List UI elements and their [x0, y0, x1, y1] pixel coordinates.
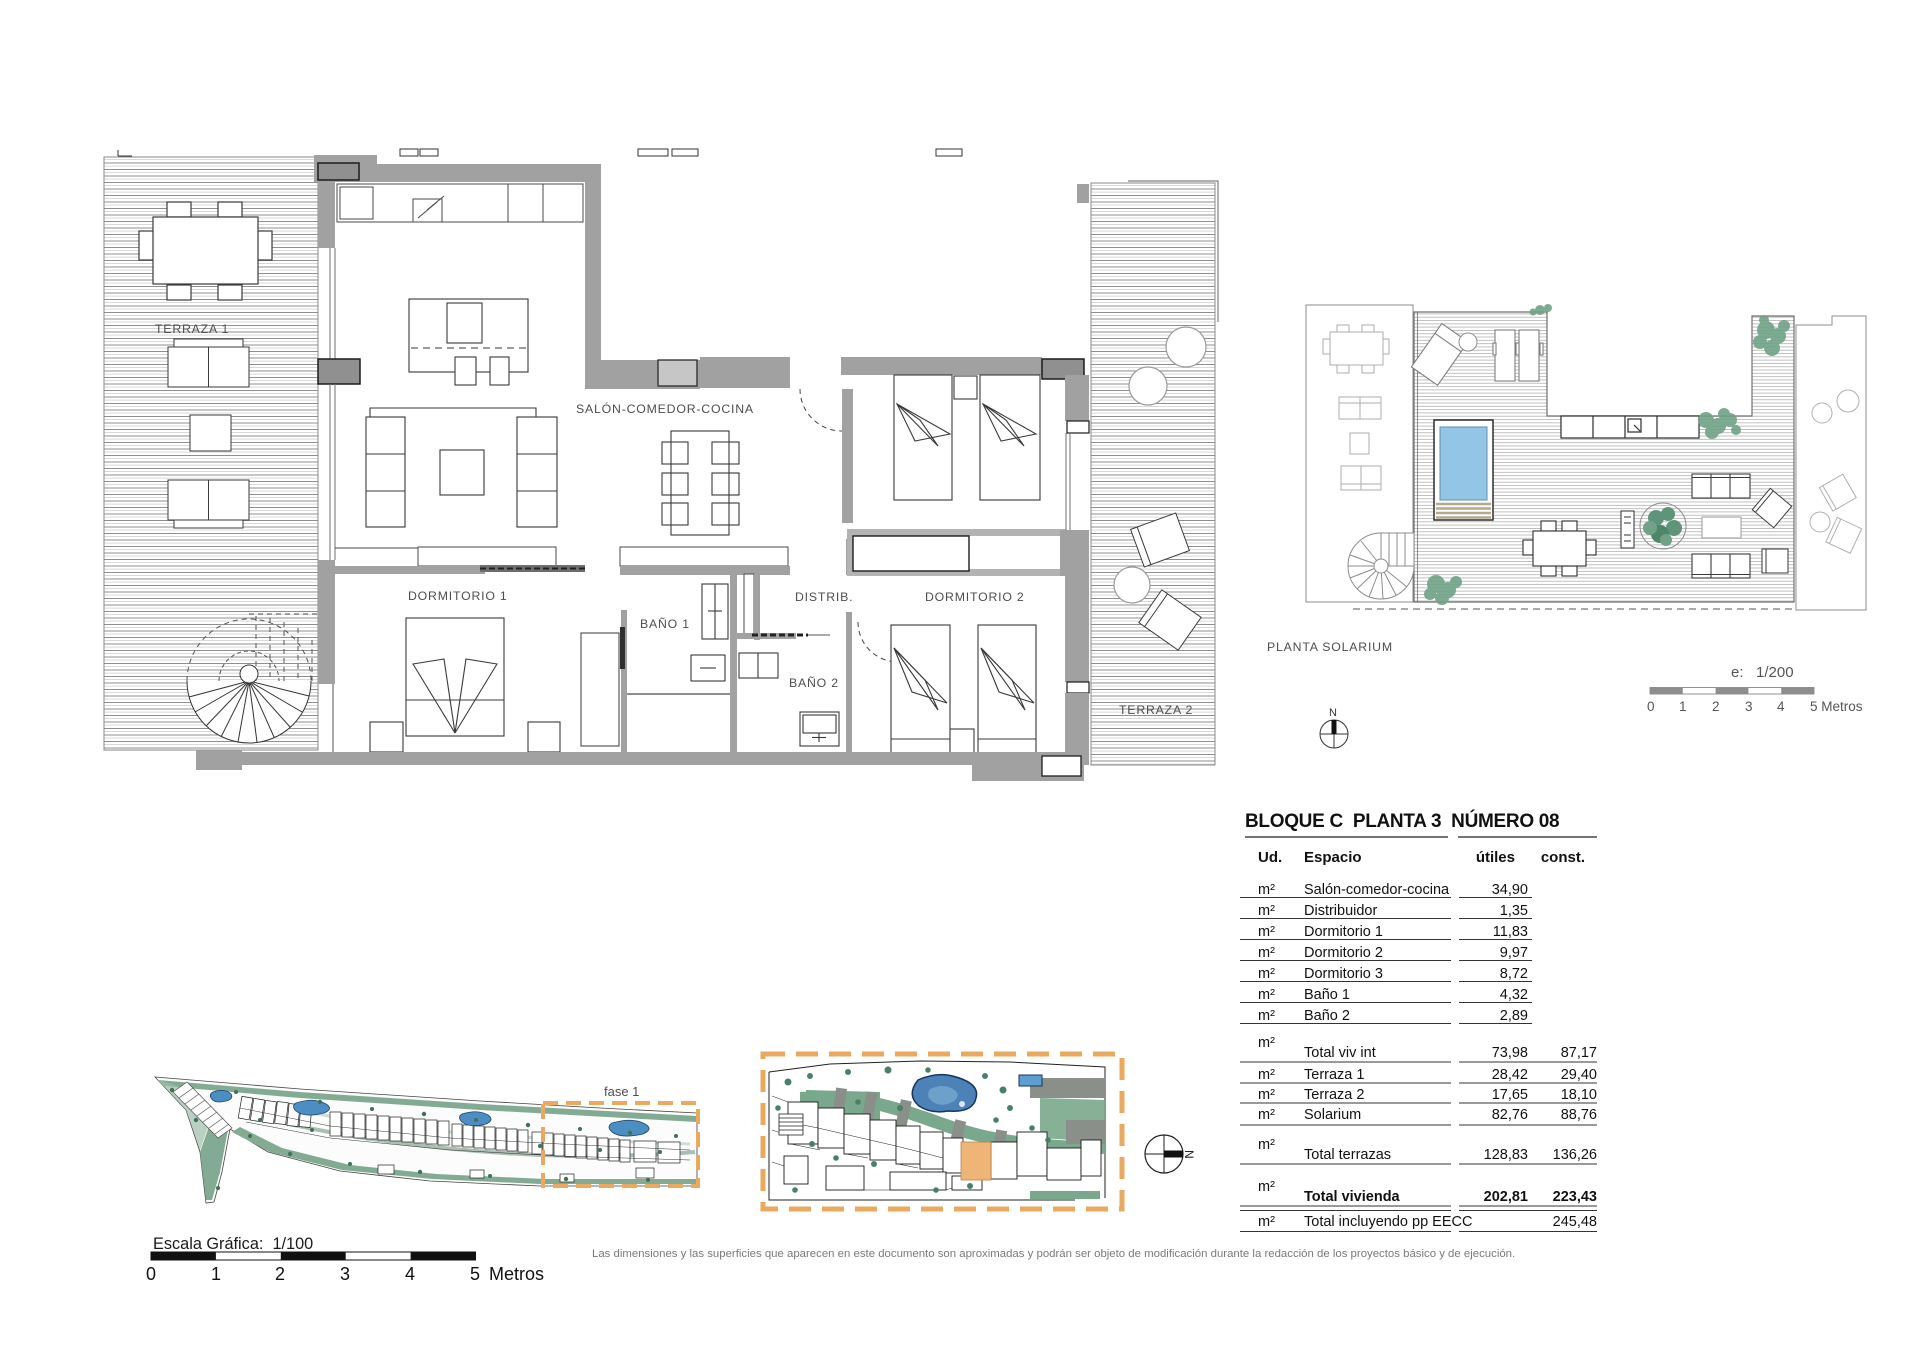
svg-text:1,35: 1,35 [1500, 903, 1528, 919]
svg-text:m²: m² [1258, 966, 1275, 982]
svg-text:Terraza 1: Terraza 1 [1304, 1067, 1364, 1083]
svg-text:1: 1 [1679, 699, 1687, 714]
svg-text:18,10: 18,10 [1561, 1087, 1597, 1103]
svg-text:m²: m² [1258, 987, 1275, 1003]
svg-text:87,17: 87,17 [1561, 1045, 1597, 1061]
svg-text:m²: m² [1258, 1137, 1275, 1153]
svg-text:128,83: 128,83 [1484, 1147, 1528, 1163]
svg-text:Ud.: Ud. [1258, 849, 1282, 866]
svg-text:Total incluyendo pp EECC: Total incluyendo pp EECC [1304, 1214, 1472, 1230]
svg-text:Salón-comedor-cocina: Salón-comedor-cocina [1304, 882, 1450, 898]
svg-text:Baño 2: Baño 2 [1304, 1008, 1350, 1024]
svg-text:2: 2 [275, 1264, 285, 1284]
svg-text:17,65: 17,65 [1492, 1087, 1528, 1103]
svg-text:const.: const. [1541, 849, 1585, 866]
svg-text:Escala Gráfica: 1/100: Escala Gráfica: 1/100 [153, 1235, 313, 1253]
svg-text:útiles: útiles [1476, 849, 1515, 866]
svg-text:DORMITORIO 1: DORMITORIO 1 [408, 589, 508, 603]
svg-text:0: 0 [146, 1264, 156, 1284]
svg-text:3: 3 [1745, 699, 1753, 714]
svg-text:m²: m² [1258, 882, 1275, 898]
svg-text:Dormitorio 2: Dormitorio 2 [1304, 945, 1383, 961]
svg-text:136,26: 136,26 [1553, 1147, 1597, 1163]
svg-text:11,83: 11,83 [1493, 924, 1528, 940]
svg-text:Baño 1: Baño 1 [1304, 987, 1350, 1003]
svg-text:4: 4 [1777, 699, 1785, 714]
svg-text:Dormitorio 1: Dormitorio 1 [1304, 924, 1383, 940]
svg-text:0: 0 [1647, 699, 1655, 714]
svg-text:Dormitorio 3: Dormitorio 3 [1304, 966, 1383, 982]
svg-text:m²: m² [1258, 1214, 1275, 1230]
svg-text:DISTRIB.: DISTRIB. [795, 590, 853, 604]
svg-text:TERRAZA 2: TERRAZA 2 [1119, 703, 1193, 717]
svg-text:BLOQUE C PLANTA 3 NÚMERO 08: BLOQUE C PLANTA 3 NÚMERO 08 [1245, 810, 1559, 832]
svg-text:Total vivienda: Total vivienda [1304, 1189, 1401, 1205]
svg-text:m²: m² [1258, 1087, 1275, 1103]
svg-text:Terraza 2: Terraza 2 [1304, 1087, 1364, 1103]
svg-text:N: N [1329, 707, 1337, 719]
svg-text:m²: m² [1258, 1107, 1275, 1123]
svg-text:e: 1/200: e: 1/200 [1731, 664, 1794, 681]
svg-text:m²: m² [1258, 1067, 1275, 1083]
svg-text:Espacio: Espacio [1304, 849, 1362, 866]
svg-text:29,40: 29,40 [1561, 1067, 1597, 1083]
svg-text:DORMITORIO 2: DORMITORIO 2 [925, 590, 1025, 604]
svg-text:m²: m² [1258, 1179, 1275, 1195]
svg-text:28,42: 28,42 [1492, 1067, 1528, 1083]
svg-text:N: N [1182, 1150, 1196, 1159]
svg-text:TERRAZA 1: TERRAZA 1 [155, 322, 229, 336]
svg-text:88,76: 88,76 [1561, 1107, 1597, 1123]
svg-text:Las dimensiones y las superfic: Las dimensiones y las superficies que ap… [592, 1248, 1515, 1260]
svg-text:2,89: 2,89 [1500, 1008, 1528, 1024]
svg-text:82,76: 82,76 [1492, 1107, 1528, 1123]
svg-text:Solarium: Solarium [1304, 1107, 1361, 1123]
svg-text:245,48: 245,48 [1553, 1214, 1597, 1230]
svg-text:1: 1 [211, 1264, 221, 1284]
svg-text:m²: m² [1258, 903, 1275, 919]
svg-text:3: 3 [340, 1264, 350, 1284]
svg-text:Metros: Metros [489, 1264, 544, 1284]
svg-text:8,72: 8,72 [1500, 966, 1528, 982]
svg-text:5 Metros: 5 Metros [1810, 699, 1863, 714]
svg-text:Distribuidor: Distribuidor [1304, 903, 1377, 919]
svg-text:fase 1: fase 1 [604, 1084, 639, 1099]
svg-text:SALÓN-COMEDOR-COCINA: SALÓN-COMEDOR-COCINA [576, 401, 754, 416]
svg-text:m²: m² [1258, 1008, 1275, 1024]
svg-text:5: 5 [470, 1264, 480, 1284]
svg-text:Total terrazas: Total terrazas [1304, 1147, 1391, 1163]
svg-text:4,32: 4,32 [1500, 987, 1528, 1003]
svg-text:202,81: 202,81 [1484, 1189, 1528, 1205]
svg-text:m²: m² [1258, 1035, 1275, 1051]
svg-text:223,43: 223,43 [1553, 1189, 1597, 1205]
svg-text:Total viv int: Total viv int [1304, 1045, 1376, 1061]
svg-text:2: 2 [1712, 699, 1720, 714]
svg-text:BAÑO 1: BAÑO 1 [640, 617, 690, 631]
svg-text:m²: m² [1258, 945, 1275, 961]
svg-text:34,90: 34,90 [1492, 882, 1528, 898]
svg-text:9,97: 9,97 [1500, 945, 1528, 961]
svg-text:m²: m² [1258, 924, 1275, 940]
svg-text:4: 4 [405, 1264, 415, 1284]
svg-text:PLANTA SOLARIUM: PLANTA SOLARIUM [1267, 640, 1393, 654]
svg-text:BAÑO 2: BAÑO 2 [789, 676, 839, 690]
svg-text:73,98: 73,98 [1492, 1045, 1528, 1061]
